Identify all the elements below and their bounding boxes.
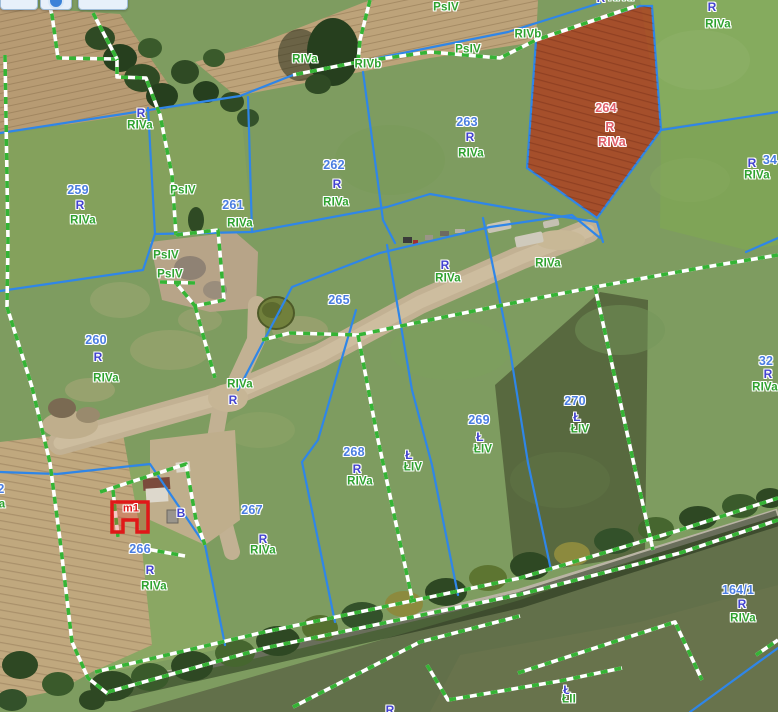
pond <box>258 297 294 329</box>
toolbar-button-3[interactable] <box>78 0 128 10</box>
map-viewport[interactable]: RRIVa259RRIVaPsIV261RIVaRIVaRIVbPsIVPsIV… <box>0 0 778 712</box>
aerial-imagery <box>0 0 778 712</box>
toolbar-button-1[interactable] <box>0 0 38 10</box>
